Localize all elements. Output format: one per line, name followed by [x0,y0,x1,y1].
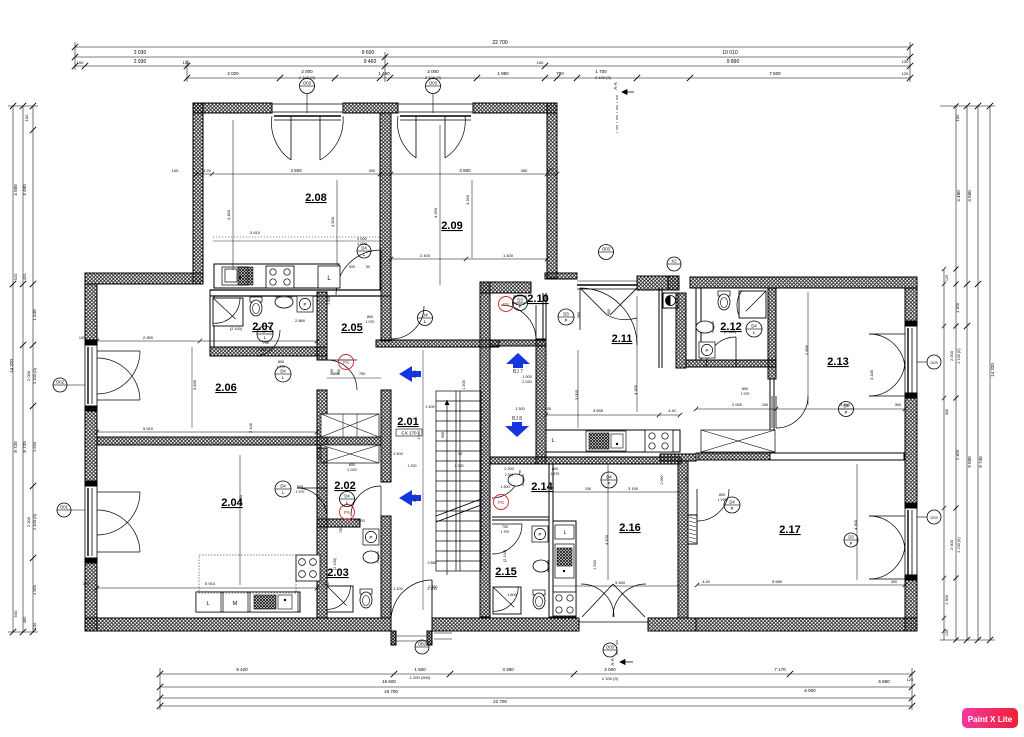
svg-text:2 000: 2 000 [26,370,31,381]
svg-text:300: 300 [891,580,897,584]
svg-text:400: 400 [22,616,27,623]
svg-text:2.14: 2.14 [531,481,553,493]
svg-text:D4: D4 [606,475,612,480]
svg-text:BJ 5: BJ 5 [412,493,417,502]
svg-text:3 695: 3 695 [593,408,604,413]
svg-text:1 300: 1 300 [944,594,949,605]
svg-text:100: 100 [323,582,329,586]
svg-text:5 910: 5 910 [143,426,154,431]
svg-text:2 200: 2 200 [504,467,514,471]
svg-text:900: 900 [337,369,341,375]
svg-text:16 600: 16 600 [382,679,396,684]
svg-text:9 500: 9 500 [967,456,972,468]
svg-text:2 000: 2 000 [26,516,31,527]
svg-text:50: 50 [366,265,370,269]
svg-text:M: M [233,601,238,607]
svg-text:2 100 (0): 2 100 (0) [32,513,37,530]
svg-text:P: P [731,506,734,511]
svg-text:O02: O02 [56,380,65,385]
svg-text:5 880: 5 880 [878,679,890,684]
svg-text:1 970: 1 970 [262,346,271,350]
svg-text:4 450: 4 450 [226,209,231,220]
svg-text:(2 100): (2 100) [333,557,337,570]
svg-text:1 200: 1 200 [455,464,464,468]
svg-text:4 560: 4 560 [13,184,18,196]
svg-text:1 200: 1 200 [393,587,403,591]
svg-text:O03: O03 [602,247,611,252]
svg-text:120: 120 [902,71,909,76]
svg-text:2.13: 2.13 [827,356,848,368]
svg-text:2 100 (0): 2 100 (0) [32,367,37,384]
svg-text:D4: D4 [344,494,350,499]
svg-text:2 400: 2 400 [420,253,431,258]
svg-text:2 930: 2 930 [134,59,147,65]
svg-text:700: 700 [263,341,269,345]
svg-text:3 480: 3 480 [840,402,851,407]
svg-text:5 580: 5 580 [772,579,783,584]
svg-text:2 260: 2 260 [505,473,514,477]
svg-text:1 300: 1 300 [515,407,525,411]
svg-text:300: 300 [895,403,901,407]
svg-text:2 860: 2 860 [295,318,306,323]
svg-text:O03: O03 [930,516,937,520]
svg-text:2.15: 2.15 [495,566,516,578]
svg-text:D3: D3 [517,298,523,303]
svg-text:2 020: 2 020 [347,468,357,472]
svg-text:PS: PS [343,360,349,365]
svg-text:2 650: 2 650 [428,561,437,565]
svg-text:380: 380 [521,168,528,173]
svg-text:2 400: 2 400 [955,449,960,460]
svg-text:100: 100 [79,336,85,340]
svg-text:100: 100 [537,60,544,65]
svg-text:D4: D4 [361,246,367,251]
svg-text:100: 100 [955,114,960,121]
svg-text:300: 300 [369,168,376,173]
svg-text:Paint X Lite: Paint X Lite [968,715,1013,724]
svg-text:8 720: 8 720 [13,441,18,453]
svg-text:P: P [538,532,541,537]
svg-text:2 360: 2 360 [417,431,421,440]
svg-text:120: 120 [902,59,909,64]
svg-text:800: 800 [278,360,284,364]
svg-text:(2 100): (2 100) [724,330,737,334]
svg-text:800: 800 [719,493,725,497]
svg-text:960: 960 [577,312,581,318]
svg-text:2 100 (0): 2 100 (0) [602,676,619,681]
svg-text:4 480: 4 480 [956,190,961,202]
svg-text:2 400: 2 400 [426,405,435,409]
svg-text:1 200: 1 200 [408,464,417,468]
svg-text:1 970: 1 970 [718,498,727,502]
svg-text:1 300: 1 300 [955,302,960,313]
svg-text:O03: O03 [303,81,312,86]
svg-text:L: L [551,438,554,444]
svg-text:900: 900 [607,309,611,315]
svg-text:1 970: 1 970 [296,490,305,494]
svg-text:34: 34 [458,452,462,456]
svg-text:2 100 (0): 2 100 (0) [425,75,442,80]
svg-text:2 400: 2 400 [393,452,403,456]
svg-text:BJ 6: BJ 6 [412,369,417,378]
svg-text:O01: O01 [60,505,69,510]
svg-text:BJ 8: BJ 8 [512,416,522,422]
svg-text:1 970: 1 970 [741,392,750,396]
svg-text:2 000: 2 000 [357,237,367,241]
svg-text:PS: PS [344,510,350,515]
svg-text:800: 800 [367,315,373,319]
svg-text:155: 155 [545,407,551,411]
svg-text:3 845: 3 845 [192,379,197,390]
svg-text:9 890: 9 890 [727,59,740,65]
svg-text:2 100 (0): 2 100 (0) [957,537,961,553]
svg-text:1 640: 1 640 [32,441,37,452]
svg-text:2.08: 2.08 [305,192,326,204]
svg-text:4 445: 4 445 [869,369,874,380]
svg-text:P: P [845,410,848,415]
svg-text:2.06: 2.06 [215,382,236,394]
svg-text:P: P [519,304,522,309]
svg-text:6 000: 6 000 [804,688,816,693]
svg-text:3 390: 3 390 [502,667,514,672]
svg-text:K2: K2 [671,259,677,264]
svg-text:9 600: 9 600 [362,50,375,56]
svg-text:1 970: 1 970 [501,530,510,534]
svg-text:905: 905 [441,432,445,438]
svg-text:1 970: 1 970 [277,365,286,369]
svg-text:D4: D4 [751,324,757,329]
svg-text:2 000: 2 000 [427,69,439,74]
svg-text:A-A: A-A [610,658,615,666]
svg-text:2 145: 2 145 [248,422,253,433]
svg-text:900: 900 [349,265,355,269]
svg-text:9 460: 9 460 [364,59,377,65]
svg-text:D4: D4 [422,313,428,318]
svg-text:2 400: 2 400 [427,587,437,591]
svg-text:100: 100 [172,168,179,173]
svg-text:900: 900 [330,369,334,375]
svg-text:2.10: 2.10 [527,293,548,305]
svg-text:700: 700 [502,525,508,529]
svg-text:10 010: 10 010 [722,50,738,56]
svg-text:2 000: 2 000 [732,402,743,407]
svg-text:100: 100 [585,487,591,491]
svg-text:D4: D4 [280,369,286,374]
svg-text:2.05: 2.05 [341,322,362,334]
svg-text:CX 170: CX 170 [401,431,417,436]
svg-text:100: 100 [547,167,554,172]
svg-text:2 000: 2 000 [949,350,954,361]
svg-text:3 190: 3 190 [628,486,639,491]
svg-text:800: 800 [349,463,355,467]
svg-text:1 530: 1 530 [32,309,37,321]
svg-text:2 100 (0): 2 100 (0) [595,75,612,80]
svg-text:420: 420 [22,273,27,280]
svg-text:P: P [303,302,306,307]
svg-text:4 650: 4 650 [433,207,438,218]
svg-text:D4: D4 [729,500,735,505]
svg-text:22 700: 22 700 [492,40,508,46]
svg-text:700: 700 [339,527,343,533]
svg-text:2 000: 2 000 [949,539,954,550]
svg-text:(2 100): (2 100) [230,327,243,331]
svg-text:P: P [565,318,568,323]
svg-text:L: L [564,530,567,536]
svg-text:4 500: 4 500 [330,216,335,227]
svg-text:300: 300 [945,409,949,415]
svg-text:PS: PS [498,500,504,505]
svg-text:2.01: 2.01 [397,416,418,428]
svg-text:OB2: OB2 [418,642,427,647]
svg-text:1 550: 1 550 [32,584,37,595]
svg-text:1 000: 1 000 [522,375,532,379]
svg-text:100: 100 [77,60,84,65]
svg-text:PS: PS [503,302,509,307]
svg-text:500: 500 [13,610,18,617]
svg-text:1 980: 1 980 [497,71,509,76]
svg-text:(2 100): (2 100) [503,549,507,562]
svg-text:2 020: 2 020 [357,242,367,246]
svg-text:O03: O03 [429,81,438,86]
svg-text:2 000: 2 000 [301,69,313,74]
svg-text:8 420: 8 420 [236,667,248,672]
svg-text:3 030: 3 030 [134,50,147,56]
svg-text:2.16: 2.16 [619,522,640,534]
svg-text:1 200: 1 200 [462,380,466,390]
svg-text:5 910: 5 910 [205,581,216,586]
svg-text:4.20: 4.20 [203,168,212,173]
svg-text:L: L [206,601,209,607]
svg-text:4 560: 4 560 [967,190,972,202]
svg-text:O03: O03 [930,361,937,365]
svg-text:1 200 (900): 1 200 (900) [410,675,431,680]
svg-text:1 700: 1 700 [595,69,607,74]
svg-text:16 700: 16 700 [384,689,398,694]
svg-text:D3: D3 [563,312,569,317]
svg-text:O03: O03 [606,645,615,650]
svg-text:D4: D4 [262,329,268,334]
svg-text:4 500: 4 500 [290,168,302,173]
svg-text:1 460: 1 460 [378,71,390,76]
svg-text:2.11: 2.11 [612,333,633,345]
svg-text:P: P [369,535,372,540]
svg-text:14 320: 14 320 [9,359,14,373]
svg-text:A-A: A-A [613,82,618,90]
svg-text:120: 120 [945,275,949,281]
svg-text:1 300: 1 300 [500,485,510,489]
svg-text:750: 750 [359,372,365,376]
svg-text:2 000: 2 000 [604,667,616,672]
svg-text:2.17: 2.17 [779,524,800,536]
svg-text:D3: D3 [848,535,854,540]
svg-text:P: P [850,541,853,546]
svg-text:2 000: 2 000 [660,476,664,485]
svg-text:D4: D4 [280,484,286,489]
svg-text:4.40: 4.40 [668,409,675,413]
svg-text:7 500: 7 500 [769,71,781,76]
svg-text:155: 155 [685,477,689,483]
svg-text:2.09: 2.09 [441,220,462,232]
svg-text:100: 100 [32,622,37,629]
svg-text:P: P [705,348,708,353]
svg-text:520: 520 [13,273,18,280]
svg-text:1 600: 1 600 [507,593,517,597]
svg-text:7 170: 7 170 [774,667,786,672]
svg-text:1 500: 1 500 [414,667,426,672]
svg-text:4 480: 4 480 [22,184,27,196]
svg-text:800: 800 [297,485,303,489]
svg-text:22 700: 22 700 [493,699,507,704]
svg-text:2 100 (0): 2 100 (0) [957,348,961,364]
svg-text:3 610: 3 610 [250,230,261,235]
svg-text:800: 800 [552,467,558,471]
svg-text:1 600: 1 600 [327,295,331,305]
svg-text:120: 120 [945,630,949,636]
svg-text:2.02: 2.02 [334,480,355,492]
svg-text:2 020: 2 020 [522,380,532,384]
svg-text:100: 100 [24,114,29,121]
svg-text:4.40: 4.40 [702,580,709,584]
svg-text:2 950: 2 950 [143,335,154,340]
svg-text:800: 800 [742,387,748,391]
svg-text:1 400: 1 400 [503,253,514,258]
svg-text:1 970: 1 970 [366,320,375,324]
svg-text:2.03: 2.03 [327,567,348,579]
svg-text:3 800: 3 800 [459,168,471,173]
svg-text:1 300: 1 300 [355,519,365,523]
svg-text:100: 100 [183,60,190,65]
svg-text:120: 120 [907,677,914,682]
svg-text:9 740: 9 740 [978,456,983,468]
svg-text:1 970: 1 970 [551,472,560,476]
svg-text:1 940: 1 940 [593,560,597,570]
svg-text:100: 100 [83,582,89,586]
svg-text:14 320: 14 320 [990,363,995,377]
svg-text:2 100 (0): 2 100 (0) [299,75,316,80]
svg-text:4 720: 4 720 [238,494,243,505]
svg-text:2 020: 2 020 [227,71,239,76]
svg-text:3 450: 3 450 [615,580,626,585]
svg-text:8 720: 8 720 [22,441,27,453]
svg-text:100: 100 [762,403,768,407]
svg-text:790: 790 [556,71,564,76]
svg-text:4 250: 4 250 [465,194,470,205]
